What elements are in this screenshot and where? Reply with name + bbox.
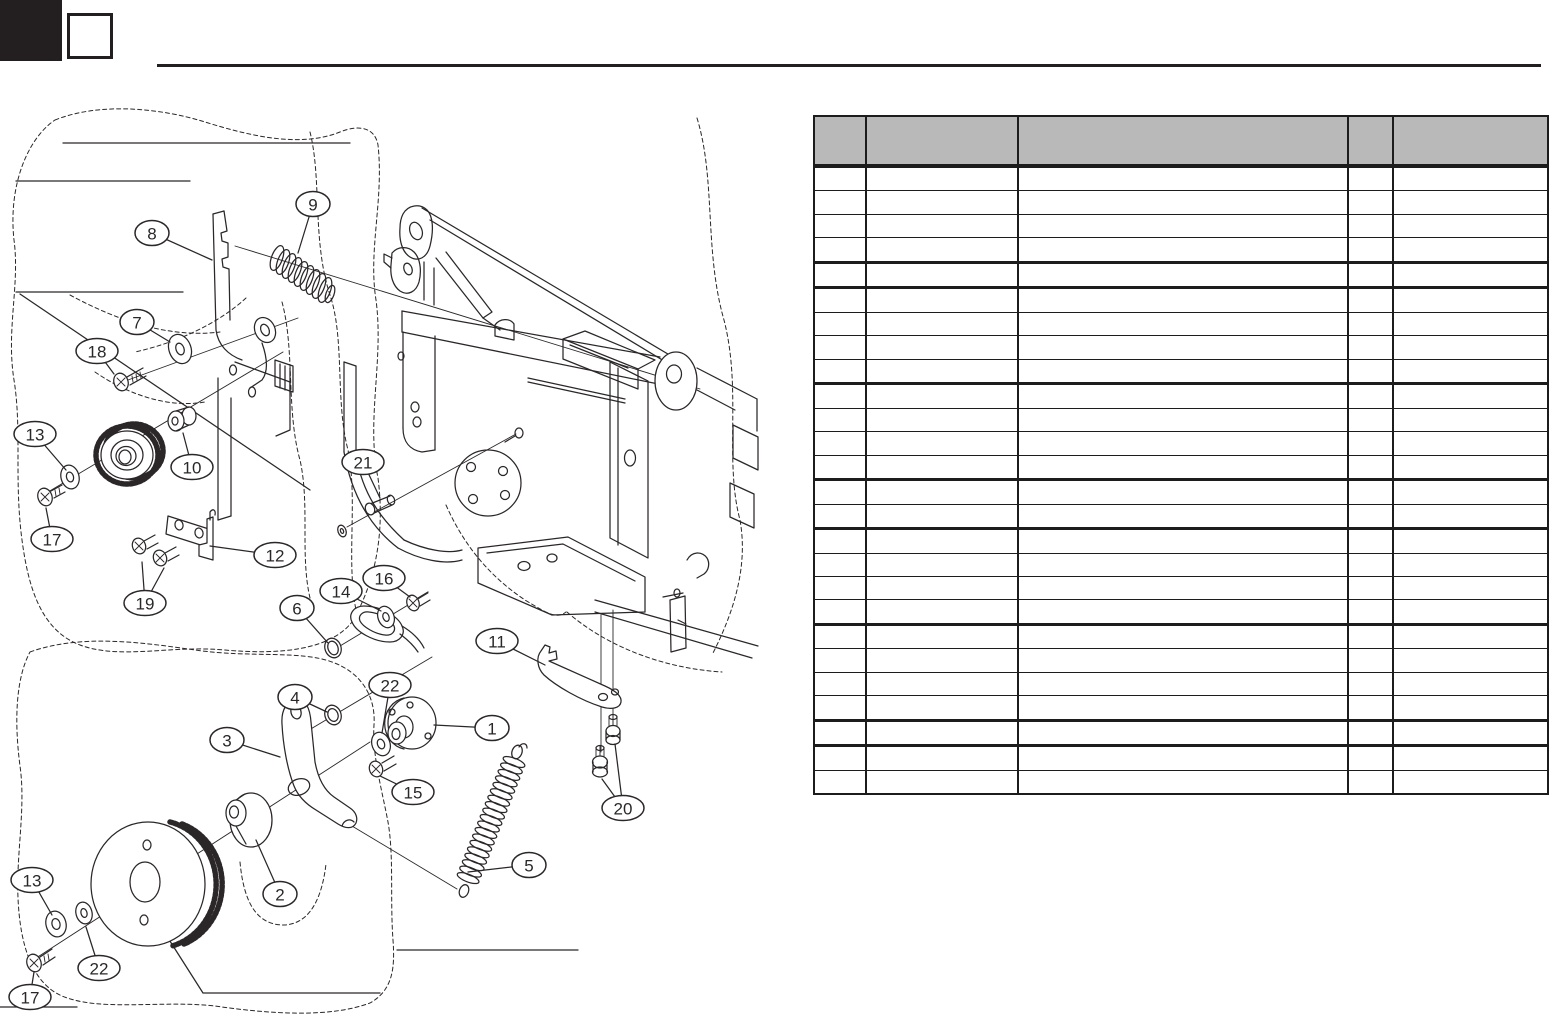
table-cell: [867, 456, 1019, 478]
table-cell: [1019, 577, 1349, 599]
table-cell: [815, 696, 867, 718]
table-cell: [867, 649, 1019, 671]
table-cell: [815, 238, 867, 260]
table-cell: [1394, 577, 1547, 599]
table-cell: [867, 696, 1019, 718]
table-cell: [815, 530, 867, 552]
table-cell: [867, 313, 1019, 335]
table-cell: [1019, 336, 1349, 358]
table-cell: [1349, 626, 1394, 648]
table-row: [815, 313, 1547, 336]
dashed-outline-upper: [11, 109, 380, 652]
table-cell: [815, 264, 867, 286]
table-cell: [1019, 530, 1349, 552]
screw-17-lower-part: [24, 949, 55, 974]
table-cell: [1349, 696, 1394, 718]
table-cell: [867, 168, 1019, 190]
table-cell: [1019, 554, 1349, 576]
table-cell: [1349, 168, 1394, 190]
table-row: [815, 264, 1547, 289]
callout-number-6: 6: [292, 600, 301, 619]
screws-20-part: [593, 715, 621, 778]
ratchet-gear-part: [96, 424, 163, 484]
table-cell: [1349, 215, 1394, 237]
table-row: [815, 168, 1547, 191]
table-row: [815, 360, 1547, 385]
table-cell: [1349, 238, 1394, 260]
gear-drum-part: [91, 822, 222, 946]
table-row: [815, 771, 1547, 793]
table-cell: [1019, 673, 1349, 695]
table-cell: [1394, 771, 1547, 793]
main-frame-part: [344, 206, 758, 658]
table-cell: [867, 215, 1019, 237]
table-cell: [815, 215, 867, 237]
table-cell: [867, 577, 1019, 599]
table-row: [815, 385, 1547, 408]
table-cell: [815, 385, 867, 407]
table-cell: [1349, 505, 1394, 527]
lever-3-part: [282, 699, 357, 828]
table-cell: [1019, 264, 1349, 286]
screw-15-part: [367, 756, 396, 779]
table-cell: [815, 481, 867, 503]
table-cell: [1019, 191, 1349, 213]
table-cell: [1019, 215, 1349, 237]
table-cell: [1019, 289, 1349, 311]
table-cell: [1394, 289, 1547, 311]
table-cell: [867, 626, 1019, 648]
table-cell: [1394, 554, 1547, 576]
manual-page: 9871813102117121961416114223115520213221…: [0, 0, 1556, 1023]
table-cell: [815, 600, 867, 622]
table-cell: [1349, 289, 1394, 311]
table-cell: [815, 336, 867, 358]
table-cell: [1019, 238, 1349, 260]
table-cell: [815, 577, 867, 599]
table-cell: [1349, 409, 1394, 431]
table-cell: [815, 191, 867, 213]
table-cell: [867, 747, 1019, 769]
table-cell: [1349, 432, 1394, 454]
callout-number-22: 22: [381, 677, 400, 696]
table-cell: [1394, 168, 1547, 190]
table-row: [815, 673, 1547, 696]
callout-number-1: 1: [487, 720, 496, 739]
table-cell: [1019, 360, 1349, 382]
callout-number-12: 12: [266, 547, 285, 566]
table-row: [815, 409, 1547, 432]
callout-number-11: 11: [488, 633, 506, 652]
table-cell: [815, 456, 867, 478]
table-cell: [815, 722, 867, 744]
table-cell: [867, 264, 1019, 286]
table-cell: [1394, 215, 1547, 237]
washer-7-part: [165, 331, 196, 367]
table-cell: [1019, 481, 1349, 503]
table-header-cell: [1349, 117, 1394, 164]
callout-number-4: 4: [290, 689, 299, 708]
screw-17-upper-part: [35, 485, 65, 508]
spacer-10-part: [168, 407, 196, 431]
table-cell: [1394, 673, 1547, 695]
table-row: [815, 336, 1547, 359]
callout-number-19: 19: [136, 595, 155, 614]
table-cell: [1394, 747, 1547, 769]
nut-4-part: [322, 703, 344, 727]
table-cell: [1349, 577, 1394, 599]
table-cell: [867, 409, 1019, 431]
table-cell: [867, 771, 1019, 793]
table-row: [815, 215, 1547, 238]
table-row: [815, 432, 1547, 455]
table-cell: [1349, 771, 1394, 793]
table-cell: [1349, 600, 1394, 622]
table-cell: [867, 481, 1019, 503]
callout-number-2: 2: [275, 886, 284, 905]
table-cell: [1019, 456, 1349, 478]
table-row: [815, 600, 1547, 625]
table-cell: [1394, 626, 1547, 648]
table-cell: [815, 554, 867, 576]
table-cell: [1019, 626, 1349, 648]
callout-number-8: 8: [147, 225, 156, 244]
table-cell: [1019, 696, 1349, 718]
table-cell: [1019, 432, 1349, 454]
table-cell: [815, 505, 867, 527]
callout-number-13: 13: [26, 426, 45, 445]
table-cell: [1394, 191, 1547, 213]
table-cell: [1349, 747, 1394, 769]
table-cell: [867, 360, 1019, 382]
exploded-parts-diagram: 9871813102117121961416114223115520213221…: [0, 0, 800, 1023]
table-cell: [1394, 313, 1547, 335]
screws-19-part: [130, 535, 179, 568]
callout-number-7: 7: [132, 314, 141, 333]
callout-number-17: 17: [21, 989, 40, 1008]
table-cell: [1349, 191, 1394, 213]
table-row: [815, 481, 1547, 504]
table-row: [815, 289, 1547, 312]
table-cell: [1394, 385, 1547, 407]
table-cell: [815, 432, 867, 454]
table-cell: [815, 626, 867, 648]
table-cell: [1019, 409, 1349, 431]
dashed-outline-lower: [17, 641, 394, 1013]
table-header-cell: [1394, 117, 1547, 164]
table-row: [815, 722, 1547, 747]
callout-number-21: 21: [354, 454, 373, 473]
table-cell: [867, 289, 1019, 311]
table-cell: [1019, 313, 1349, 335]
table-cell: [1019, 771, 1349, 793]
table-cell: [1349, 649, 1394, 671]
table-cell: [1349, 336, 1394, 358]
table-cell: [1349, 360, 1394, 382]
table-cell: [1019, 649, 1349, 671]
table-cell: [1349, 554, 1394, 576]
table-cell: [867, 554, 1019, 576]
parts-table: [813, 115, 1549, 795]
table-cell: [1019, 600, 1349, 622]
table-cell: [1019, 722, 1349, 744]
table-cell: [815, 289, 867, 311]
table-cell: [1349, 481, 1394, 503]
callout-number-22: 22: [90, 960, 109, 979]
table-cell: [1394, 530, 1547, 552]
table-cell: [867, 385, 1019, 407]
table-cell: [815, 313, 867, 335]
callout-number-15: 15: [404, 784, 423, 803]
table-cell: [1349, 722, 1394, 744]
table-cell: [815, 168, 867, 190]
table-cell: [1349, 530, 1394, 552]
table-row: [815, 696, 1547, 721]
table-row: [815, 626, 1547, 649]
callout-number-3: 3: [222, 732, 231, 751]
table-cell: [1394, 264, 1547, 286]
table-header-cell: [867, 117, 1019, 164]
callout-number-5: 5: [524, 857, 533, 876]
table-row: [815, 747, 1547, 770]
callout-number-16: 16: [375, 570, 394, 589]
table-cell: [1394, 722, 1547, 744]
callout-number-13: 13: [23, 872, 42, 891]
callout-number-20: 20: [614, 800, 633, 819]
table-cell: [1019, 505, 1349, 527]
callout-number-17: 17: [43, 531, 62, 550]
callout-number-14: 14: [332, 583, 351, 602]
bracket-11-part: [538, 645, 621, 708]
ratchet-lever-part: [213, 211, 293, 520]
table-cell: [815, 747, 867, 769]
washer-13-lower-part: [43, 909, 69, 939]
table-row: [815, 530, 1547, 553]
table-cell: [1394, 238, 1547, 260]
table-cell: [1349, 385, 1394, 407]
table-row: [815, 554, 1547, 577]
table-header-cell: [815, 117, 867, 164]
table-cell: [1394, 600, 1547, 622]
washer-13-upper-part: [58, 463, 82, 491]
table-cell: [815, 360, 867, 382]
table-cell: [867, 673, 1019, 695]
table-cell: [1349, 313, 1394, 335]
callout-number-10: 10: [183, 459, 202, 478]
table-row: [815, 649, 1547, 672]
table-cell: [867, 191, 1019, 213]
table-cell: [867, 600, 1019, 622]
table-cell: [1394, 696, 1547, 718]
table-cell: [867, 432, 1019, 454]
table-cell: [815, 409, 867, 431]
table-cell: [1394, 649, 1547, 671]
table-row: [815, 505, 1547, 530]
callout-number-9: 9: [308, 196, 317, 215]
table-cell: [1349, 673, 1394, 695]
table-cell: [1394, 456, 1547, 478]
bracket-12-part: [166, 510, 215, 560]
table-row: [815, 191, 1547, 214]
table-cell: [867, 530, 1019, 552]
tension-spring-part: [456, 744, 527, 899]
table-cell: [1394, 505, 1547, 527]
table-cell: [1019, 747, 1349, 769]
table-row: [815, 238, 1547, 263]
table-cell: [867, 722, 1019, 744]
flange-1-part: [385, 697, 436, 749]
table-header-cell: [1019, 117, 1349, 164]
table-cell: [1349, 264, 1394, 286]
table-cell: [815, 771, 867, 793]
table-cell: [1394, 432, 1547, 454]
table-row: [815, 577, 1547, 600]
table-cell: [1394, 360, 1547, 382]
table-cell: [815, 649, 867, 671]
callout-number-18: 18: [88, 343, 107, 362]
screw-18-part: [111, 368, 146, 393]
table-cell: [1019, 168, 1349, 190]
table-cell: [1349, 456, 1394, 478]
table-cell: [1394, 409, 1547, 431]
table-cell: [867, 238, 1019, 260]
table-cell: [1394, 481, 1547, 503]
bushing-2-part: [226, 793, 272, 847]
table-header-row: [815, 117, 1547, 168]
table-row: [815, 456, 1547, 481]
table-cell: [815, 673, 867, 695]
table-cell: [1019, 385, 1349, 407]
table-cell: [867, 336, 1019, 358]
table-cell: [1394, 336, 1547, 358]
table-cell: [867, 505, 1019, 527]
